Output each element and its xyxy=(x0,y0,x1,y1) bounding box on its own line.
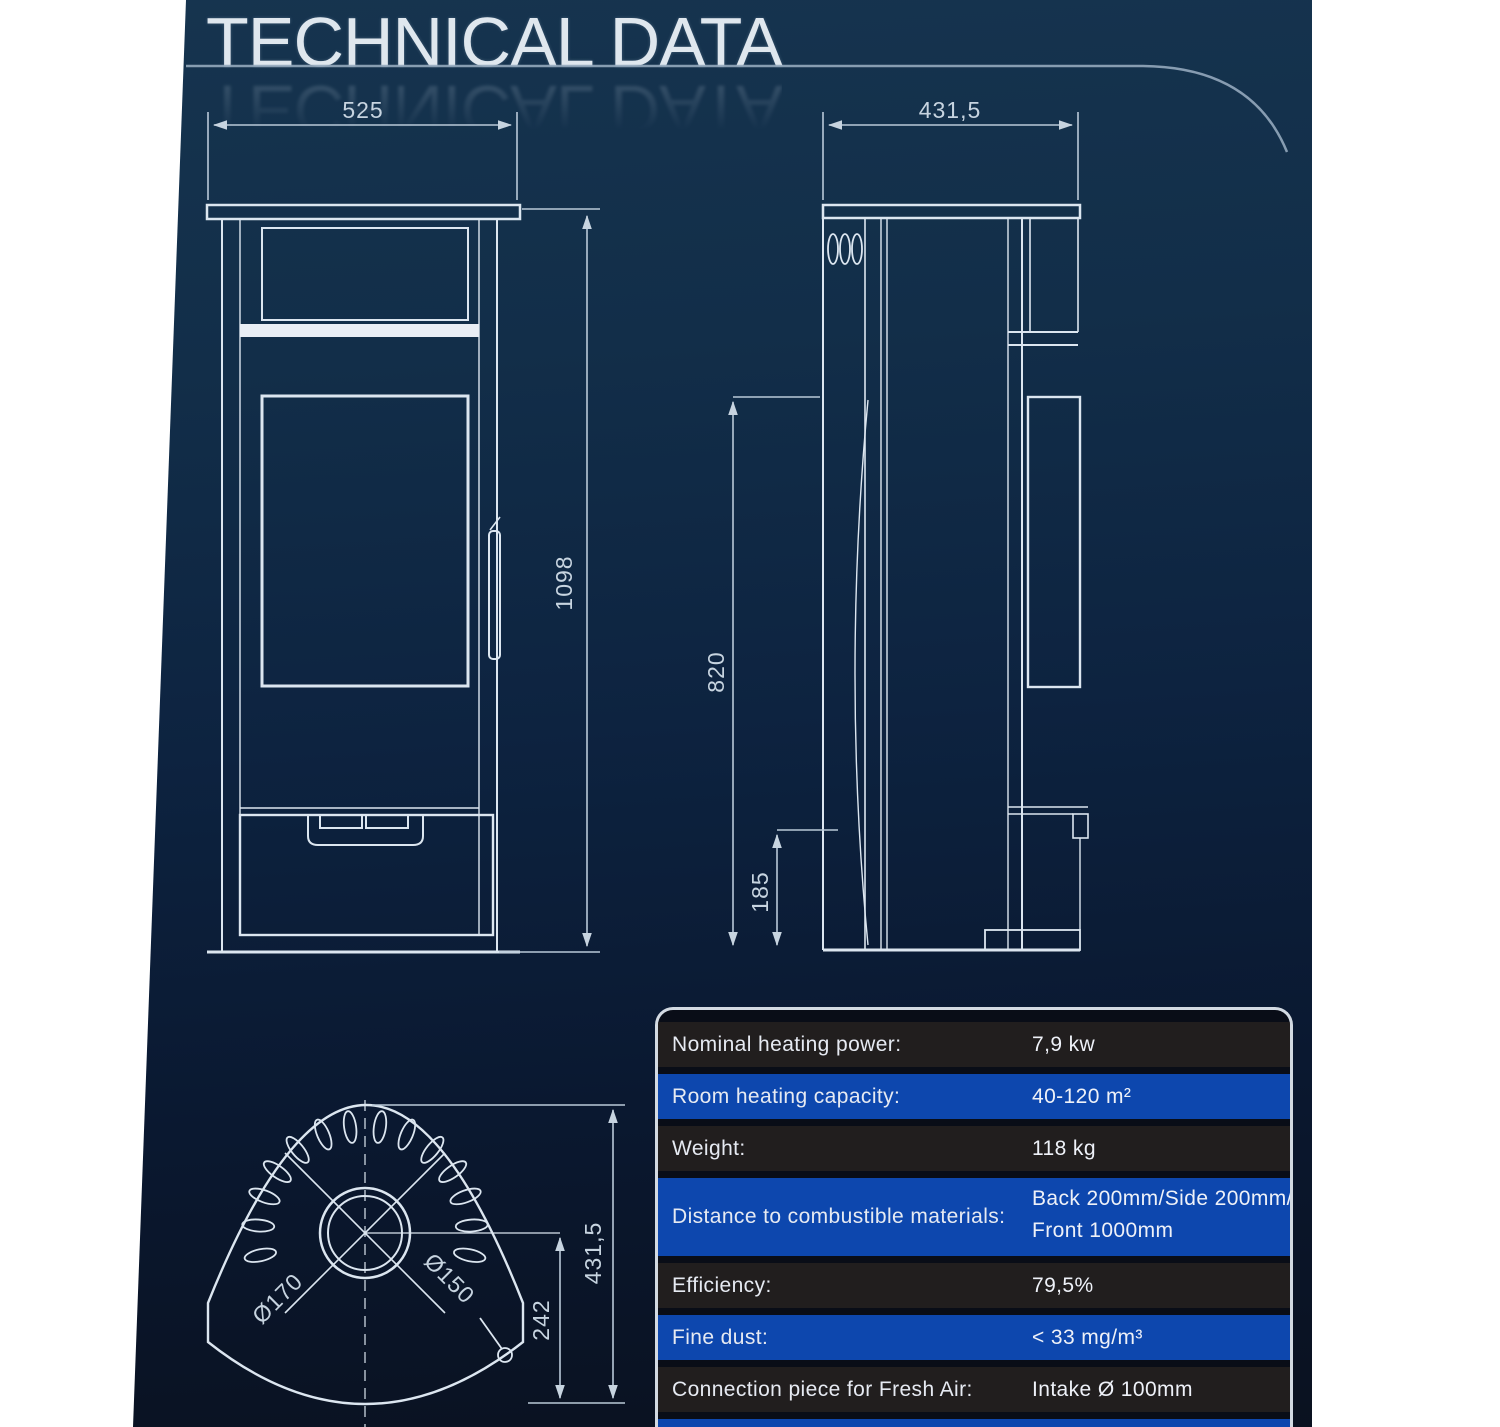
side-heat-shield-panel xyxy=(1028,397,1080,687)
spec-label: Weight: xyxy=(672,1126,746,1171)
spec-label: Room heating capacity: xyxy=(672,1074,900,1119)
front-door-handle xyxy=(489,531,500,659)
side-vent-slots xyxy=(828,234,862,264)
flue-inner-diameter-label: Ø150 xyxy=(419,1248,480,1309)
spec-value: Intake Ø 100mm xyxy=(1032,1367,1193,1412)
front-height-dimension xyxy=(499,209,600,952)
page: TECHNICAL DATA TECHNICAL DATA xyxy=(0,0,1500,1427)
front-drawer-tab-right xyxy=(366,815,408,828)
spec-row-connection-piece-fresh-air: Connection piece for Fresh Air: Intake Ø… xyxy=(658,1367,1290,1412)
side-view-drawing xyxy=(823,205,1088,950)
spec-row-fine-dust: Fine dust: < 33 mg/m³ xyxy=(658,1315,1290,1360)
front-door-window xyxy=(262,396,468,686)
front-width-dimension xyxy=(208,112,517,200)
side-depth-dimension xyxy=(823,112,1078,200)
spec-value: < 33 mg/m³ xyxy=(1032,1315,1143,1360)
spec-row-distance-to-combustible-materials: Distance to combustible materials: Back … xyxy=(658,1178,1290,1256)
side-latch-step xyxy=(1073,814,1088,838)
side-top-plate xyxy=(823,205,1080,218)
spec-label: Nominal heating power: xyxy=(672,1022,901,1067)
spec-label: Distance to combustible materials: xyxy=(672,1178,1005,1256)
top-offset-label: 242 xyxy=(528,1299,554,1340)
top-depth-label: 431,5 xyxy=(580,1222,606,1285)
spec-row-weight: Weight: 118 kg xyxy=(658,1126,1290,1171)
spec-label: Fine dust: xyxy=(672,1315,768,1360)
spec-row-room-heating-capacity: Room heating capacity: 40-120 m² xyxy=(658,1074,1290,1119)
spec-label: Connection piece for Fresh Air: xyxy=(672,1367,973,1412)
top-view-drawing xyxy=(208,1100,560,1427)
side-curved-door-front xyxy=(855,400,868,945)
front-upper-chamber xyxy=(262,228,468,320)
side-base-dimension xyxy=(777,830,838,945)
front-width-label: 525 xyxy=(342,97,383,123)
top-handle xyxy=(480,1318,512,1362)
spec-value: 7,9 kw xyxy=(1032,1022,1095,1067)
side-base-label: 185 xyxy=(747,871,773,912)
side-upper-label: 820 xyxy=(703,651,729,692)
front-ash-drawer xyxy=(240,815,493,935)
spec-value: 79,5% xyxy=(1032,1263,1094,1308)
spec-value: 118 kg xyxy=(1032,1126,1096,1171)
side-depth-label: 431,5 xyxy=(919,97,982,123)
spec-row-cutoff xyxy=(658,1419,1290,1427)
spec-value-line-1: Back 200mm/Side 200mm/ xyxy=(1032,1187,1293,1211)
front-air-control-band xyxy=(240,324,479,337)
spec-label: Efficiency: xyxy=(672,1263,772,1308)
spec-value: 40-120 m² xyxy=(1032,1074,1131,1119)
spec-row-efficiency: Efficiency: 79,5% xyxy=(658,1263,1290,1308)
side-foot-block xyxy=(985,930,1080,950)
front-height-label: 1098 xyxy=(551,555,577,610)
spec-table: Nominal heating power: 7,9 kw Room heati… xyxy=(655,1007,1293,1427)
spec-row-nominal-heating-power: Nominal heating power: 7,9 kw xyxy=(658,1022,1290,1067)
front-drawer-tab-left xyxy=(320,815,362,828)
front-view-drawing xyxy=(207,205,520,952)
spec-value-line-2: Front 1000mm xyxy=(1032,1219,1173,1243)
front-top-plate xyxy=(207,205,520,219)
